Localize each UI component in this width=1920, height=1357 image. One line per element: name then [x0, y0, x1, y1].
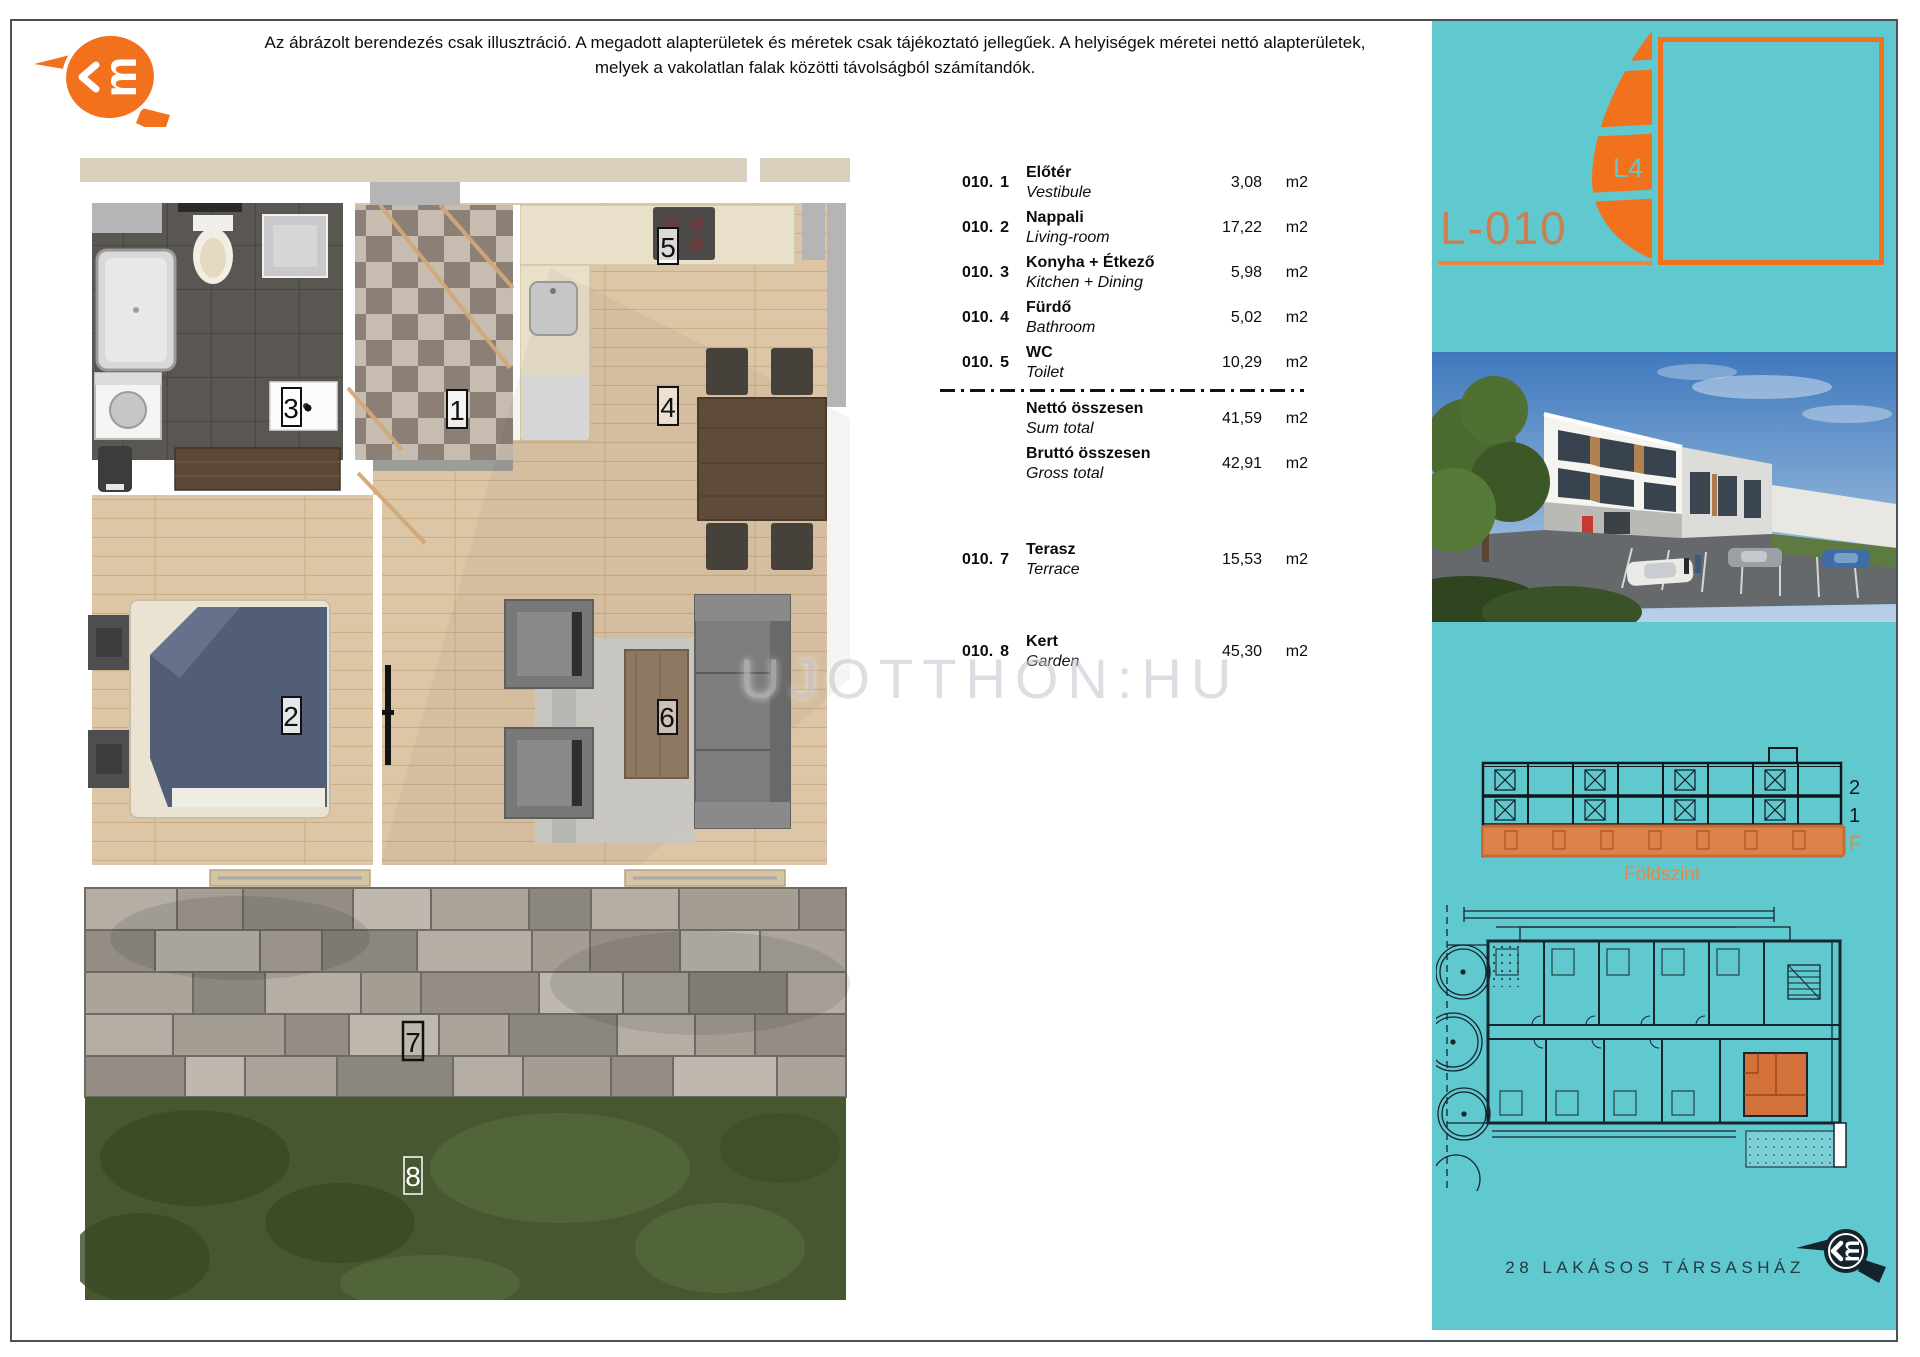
svg-text:5: 5	[660, 232, 676, 263]
sidebar: L-010 L4	[1432, 21, 1896, 1330]
building-render	[1432, 352, 1896, 622]
coffee-table-icon	[625, 650, 688, 778]
section-floor-1: 1	[1849, 805, 1860, 827]
room-label-7: 7	[403, 1022, 423, 1060]
room-label-6: 6	[658, 700, 677, 734]
trash-bin-icon	[98, 446, 132, 492]
section-floor-f: F	[1849, 833, 1861, 855]
disclaimer-text: Az ábrázolt berendezés csak illusztráció…	[225, 30, 1405, 80]
site-plan	[1436, 905, 1850, 1191]
bathroom-sink-icon	[263, 215, 327, 277]
washing-machine-icon	[95, 373, 161, 439]
unit-position-sail: L4	[1580, 31, 1670, 271]
area-table-row: 010.4FürdőBathroom5,02m2	[962, 295, 1308, 340]
section-caption: Földszint	[1624, 864, 1701, 885]
area-table-row: 010.7TeraszTerrace15,53m2	[962, 537, 1308, 582]
svg-text:m: m	[1837, 1240, 1865, 1262]
sofa-icon	[695, 595, 790, 828]
shower-icon	[97, 250, 175, 370]
area-table-row: 010.1ElőtérVestibule3,08m2	[962, 160, 1308, 205]
unit-frame-box	[1658, 37, 1884, 265]
area-table-row: Nettó összesenSum total41,59m2	[962, 396, 1308, 441]
dining-table-icon	[698, 398, 826, 520]
km-footer-logo-icon: m	[1794, 1217, 1894, 1287]
kitchen-cabinet	[523, 375, 587, 440]
disclaimer-line2: melyek a vakolatlan falak közötti távols…	[595, 58, 1035, 77]
svg-text:3: 3	[283, 393, 299, 424]
svg-text:8: 8	[405, 1161, 421, 1192]
highlighted-unit	[1744, 1053, 1807, 1116]
area-table-row: Bruttó összesenGross total42,91m2	[962, 441, 1308, 486]
area-table-total-rows: Nettó összesenSum total41,59m2Bruttó öss…	[962, 396, 1308, 486]
watermark: UJOTTHON:HU	[740, 646, 1240, 711]
table-divider	[940, 389, 1304, 392]
disclaimer-line1: Az ábrázolt berendezés csak illusztráció…	[265, 33, 1366, 52]
area-table-row: 010.2NappaliLiving-room17,22m2	[962, 205, 1308, 250]
room-label-4: 4	[658, 387, 678, 425]
kitchen-sink-icon	[530, 282, 577, 335]
area-table: 010.1ElőtérVestibule3,08m2010.2NappaliLi…	[962, 150, 1308, 674]
svg-text:6: 6	[659, 702, 675, 733]
svg-text:2: 2	[283, 701, 299, 732]
room-label-5: 5	[658, 228, 678, 264]
km-logo-icon: m	[30, 22, 180, 127]
building-section: 2 1 F Földszint	[1481, 746, 1863, 888]
unit-code-label: L-010	[1440, 201, 1568, 255]
area-table-row: 010.3Konyha + ÉtkezőKitchen + Dining5,98…	[962, 250, 1308, 295]
room-label-2: 2	[282, 697, 301, 734]
room-label-8: 8	[404, 1157, 422, 1194]
floor-plan: 1 2 3 4 5 6 7 8	[80, 158, 850, 1300]
svg-text:1: 1	[449, 395, 465, 426]
svg-text:4: 4	[660, 392, 676, 423]
area-table-main-rows: 010.1ElőtérVestibule3,08m2010.2NappaliLi…	[962, 160, 1308, 385]
page: m Az ábrázolt berendezés csak illusztrác…	[0, 0, 1920, 1357]
svg-text:7: 7	[405, 1027, 421, 1058]
vanity-counter	[270, 382, 337, 430]
room-label-1: 1	[447, 390, 467, 428]
area-table-row: 010.5WCToilet10,29m2	[962, 340, 1308, 385]
section-floor-2: 2	[1849, 777, 1860, 799]
wardrobe-icon	[175, 448, 340, 490]
svg-text:m: m	[94, 57, 146, 98]
sail-floor-label: L4	[1613, 153, 1643, 183]
